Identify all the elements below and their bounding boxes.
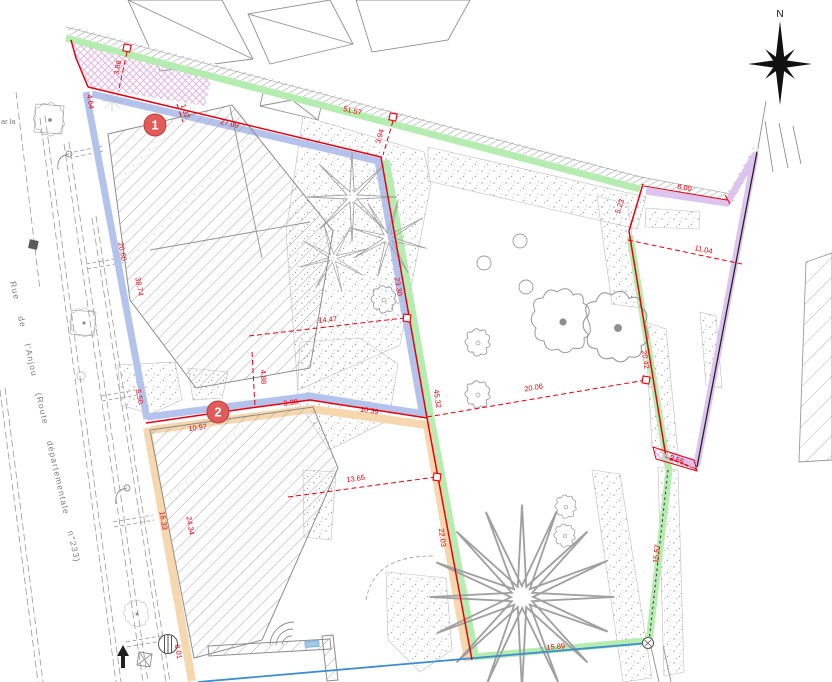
north-arrow: N xyxy=(748,9,812,105)
dim-8-01: 8.01 xyxy=(173,644,184,660)
marker-1: 1 xyxy=(144,114,166,136)
dim-45-32: 45.32 xyxy=(432,389,444,409)
tree-icon xyxy=(531,289,590,353)
survey-monument-icon xyxy=(643,638,654,649)
tree-icon xyxy=(33,103,64,136)
utility-box xyxy=(28,239,39,250)
shrub-icon xyxy=(465,329,490,356)
site-plan-drawing: 3.86 4.64 27.09 1.32 51.57 3.94 5.23 8.0… xyxy=(0,0,832,682)
shrub-icon xyxy=(465,381,490,408)
site-plan-page: 3.86 4.64 27.09 1.32 51.57 3.94 5.23 8.0… xyxy=(0,0,832,682)
tree-icon xyxy=(70,308,97,337)
street-labels: Rue de l'Anjou (Route départementale n°2… xyxy=(1,117,83,563)
arrow-symbol-icon xyxy=(117,645,129,668)
dim-15-89: 15.89 xyxy=(546,641,565,652)
dim-20-06: 20.06 xyxy=(524,381,544,393)
pool-step xyxy=(305,641,319,648)
dim-11-04: 11.04 xyxy=(694,243,714,256)
shrub-icon xyxy=(554,524,575,547)
north-label: N xyxy=(776,9,783,20)
bush-icon xyxy=(477,256,491,270)
street-fragment-label: ar la xyxy=(1,117,16,126)
bush-icon xyxy=(519,280,533,294)
dim-4-88: 4.88 xyxy=(259,369,269,384)
shrub-icon xyxy=(555,495,576,518)
lamppost-icon xyxy=(116,485,130,504)
marker-2-label: 2 xyxy=(214,405,221,420)
marker-1-label: 1 xyxy=(151,118,158,133)
dim-22-03: 22.03 xyxy=(437,528,449,548)
bush-icon xyxy=(513,234,527,248)
lamppost-icon xyxy=(58,151,72,170)
dim-16-33: 16.33 xyxy=(157,511,169,531)
dim-20-42: 20.42 xyxy=(639,350,651,370)
marker-2: 2 xyxy=(207,401,229,423)
dim-3-98: 3.98 xyxy=(283,397,299,408)
utility-symbols xyxy=(117,635,178,669)
neighbor-building-east xyxy=(799,253,832,462)
tree-icon xyxy=(124,600,149,627)
bush-icon xyxy=(77,372,85,380)
dim-13-65: 13.65 xyxy=(346,473,366,485)
street-name-label: Rue de l'Anjou (Route départementale n°2… xyxy=(8,280,83,563)
